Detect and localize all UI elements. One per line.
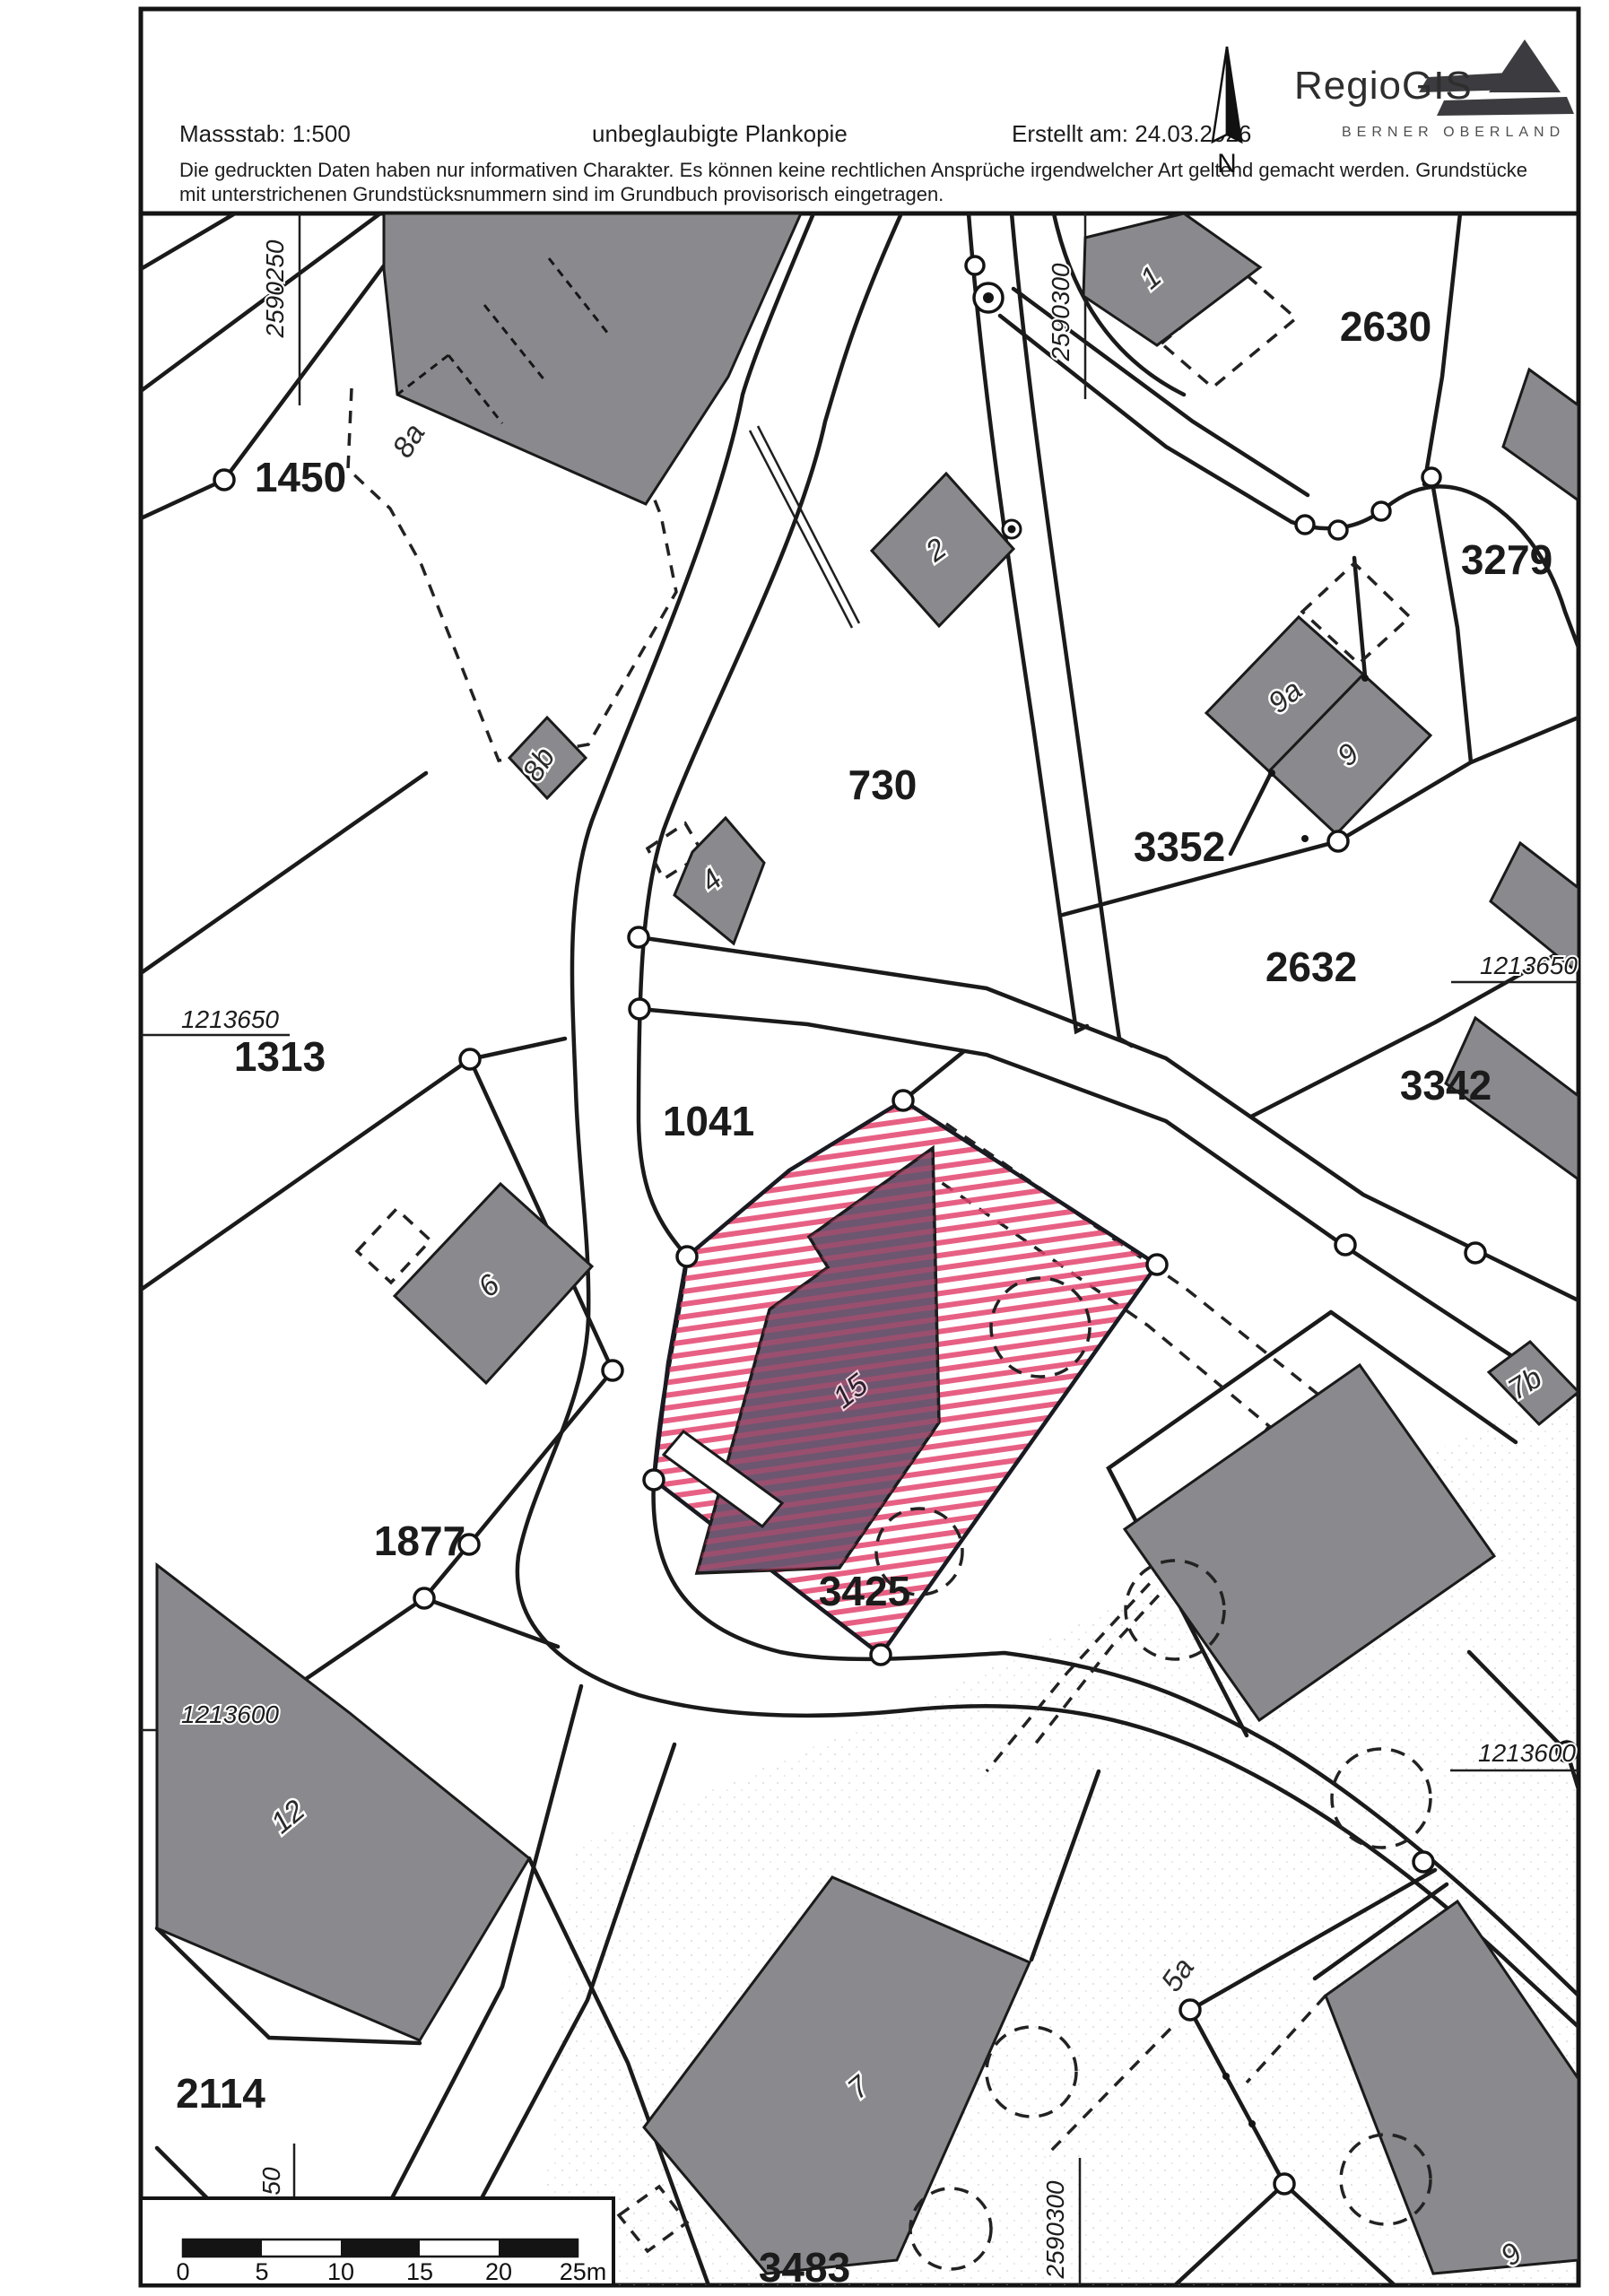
cadastral-map-svg: Massstab: 1:500 unbeglaubigte Plankopie … [0, 0, 1609, 2296]
parcel-label-730: 730 [848, 761, 918, 808]
logo-subtitle: BERNER OBERLAND [1342, 125, 1565, 140]
parcel-label-3352: 3352 [1134, 823, 1225, 870]
scale-label: Massstab: 1:500 [179, 120, 351, 147]
disclaimer-line1: Die gedruckten Daten haben nur informati… [179, 159, 1527, 181]
coord-label-easting-bottom: 2590300 [1041, 2180, 1069, 2279]
parcel-label-1041: 1041 [663, 1098, 754, 1144]
coord-label-northing-right-lower: 1213600 [1478, 1739, 1576, 1767]
parcel-label-2630: 2630 [1340, 303, 1431, 350]
parcel-label-2632: 2632 [1265, 944, 1357, 990]
parcel-label-3483: 3483 [759, 2244, 850, 2291]
coord-label-northing-left-lower: 1213600 [181, 1700, 279, 1728]
north-label: N [1217, 149, 1237, 178]
parcel-label-3279: 3279 [1461, 536, 1552, 583]
disclaimer-line2: mit unterstrichenen Grundstücksnummern s… [179, 183, 944, 205]
parcel-label-2114: 2114 [176, 2070, 265, 2117]
scale-tick-5: 5 [255, 2258, 268, 2285]
scale-tick-25m: 25m [560, 2258, 607, 2285]
coord-label-easting-top-right: 2590300 [1047, 263, 1074, 361]
parcel-label-3342: 3342 [1400, 1062, 1492, 1109]
scale-tick-0: 0 [176, 2258, 189, 2285]
parcel-label-1313: 1313 [234, 1033, 326, 1080]
scale-tick-15: 15 [406, 2258, 433, 2285]
scale-bar: 0 5 10 15 20 25m [141, 2198, 613, 2285]
coord-label-northing-left-upper: 1213650 [181, 1005, 279, 1033]
parcel-label-1877: 1877 [374, 1518, 465, 1564]
copy-type-label: unbeglaubigte Plankopie [592, 120, 848, 147]
logo-name: RegioGIS [1294, 64, 1473, 108]
parcel-label-3425: 3425 [819, 1568, 910, 1614]
cadastral-plan-page: Massstab: 1:500 unbeglaubigte Plankopie … [0, 0, 1609, 2296]
scale-tick-20: 20 [485, 2258, 512, 2285]
scale-tick-10: 10 [327, 2258, 354, 2285]
parcel-label-1450: 1450 [255, 454, 346, 500]
coord-label-easting-top-left: 2590250 [261, 239, 289, 338]
coord-label-easting-bottom-left-partial: 50 [257, 2167, 285, 2196]
coord-label-northing-right-upper: 1213650 [1480, 952, 1578, 979]
